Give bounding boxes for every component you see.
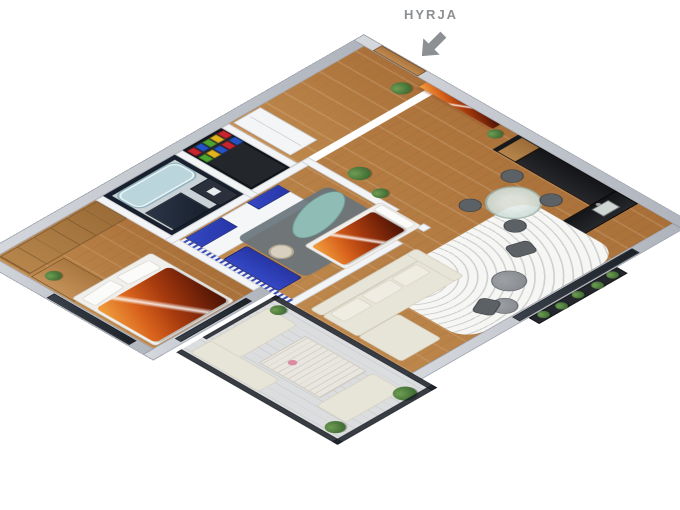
entrance-label: HYRJA	[404, 7, 458, 22]
arrow-down-left-icon	[410, 24, 456, 66]
isometric-plan	[0, 34, 680, 460]
apartment-3d-floorplan: HYRJA	[0, 0, 680, 510]
